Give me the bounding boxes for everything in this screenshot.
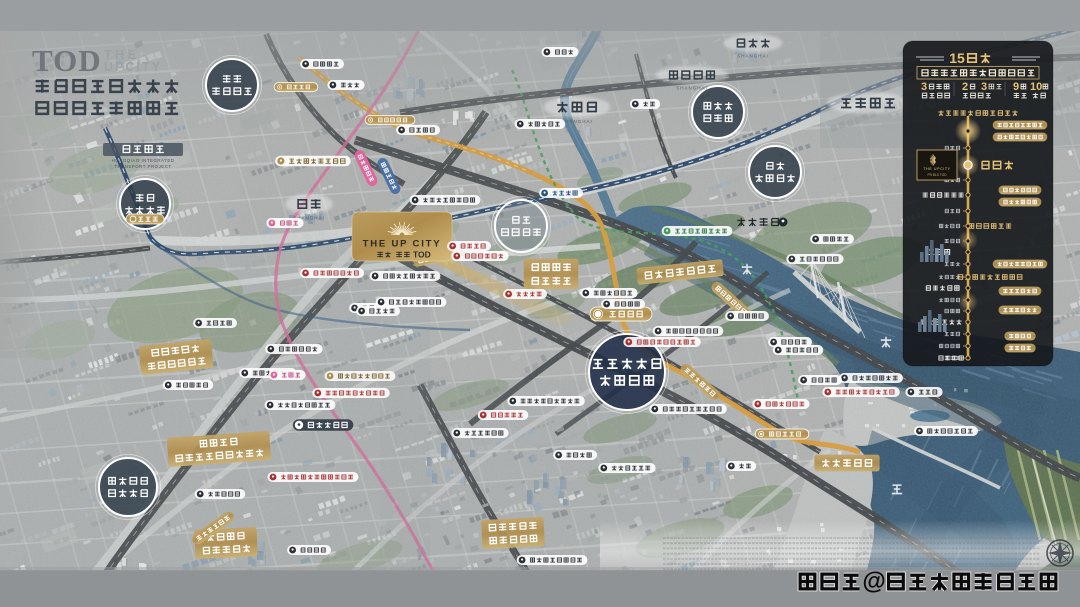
svg-text:15: 15 — [949, 50, 965, 66]
svg-text:SHANGHAI: SHANGHAI — [737, 53, 769, 58]
svg-text:PR BLD TOD: PR BLD TOD — [927, 173, 947, 177]
svg-text:TOD: TOD — [413, 250, 431, 260]
svg-text:3: 3 — [921, 81, 927, 93]
svg-text:SHANGHAI: SHANGHAI — [561, 119, 593, 124]
svg-text:3: 3 — [981, 81, 987, 93]
svg-text:TRANSPORT PROJECT: TRANSPORT PROJECT — [114, 164, 171, 169]
svg-text:THE UP CITY: THE UP CITY — [363, 239, 442, 250]
svg-text:2: 2 — [962, 81, 968, 93]
svg-text:SHANGHAI: SHANGHAI — [676, 85, 708, 90]
svg-text:10: 10 — [1030, 81, 1042, 93]
svg-text:9: 9 — [1013, 81, 1019, 93]
svg-text:TOD: TOD — [32, 43, 102, 78]
svg-text:HONGQIAO INTEGRATED: HONGQIAO INTEGRATED — [112, 158, 175, 163]
svg-text:@: @ — [862, 568, 885, 595]
svg-text:THE UPCITY: THE UPCITY — [923, 167, 950, 171]
svg-text:UPCITY: UPCITY — [104, 60, 162, 74]
